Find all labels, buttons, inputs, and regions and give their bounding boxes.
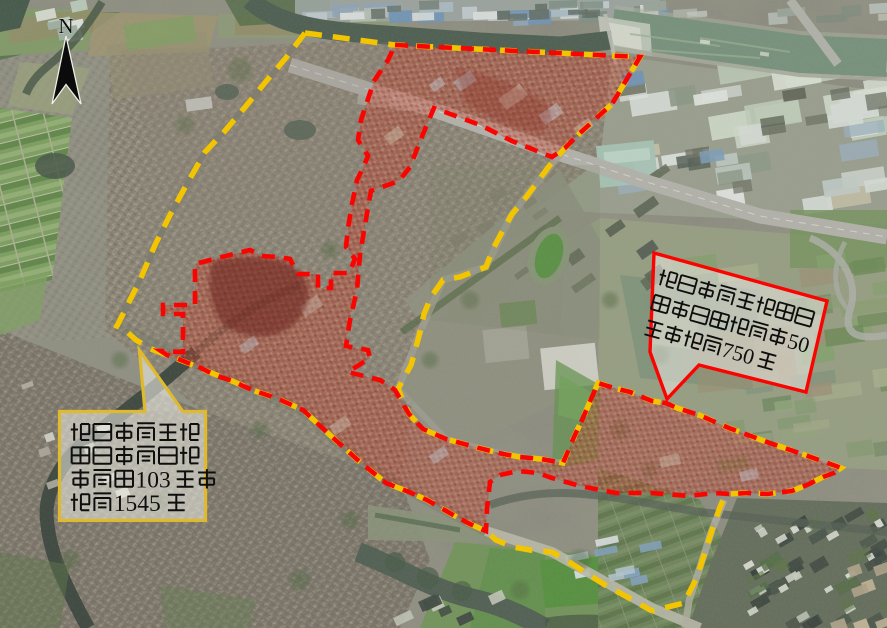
svg-text:N: N xyxy=(58,14,73,38)
svg-text:1545: 1545 xyxy=(114,491,161,517)
svg-text:103: 103 xyxy=(136,468,171,494)
